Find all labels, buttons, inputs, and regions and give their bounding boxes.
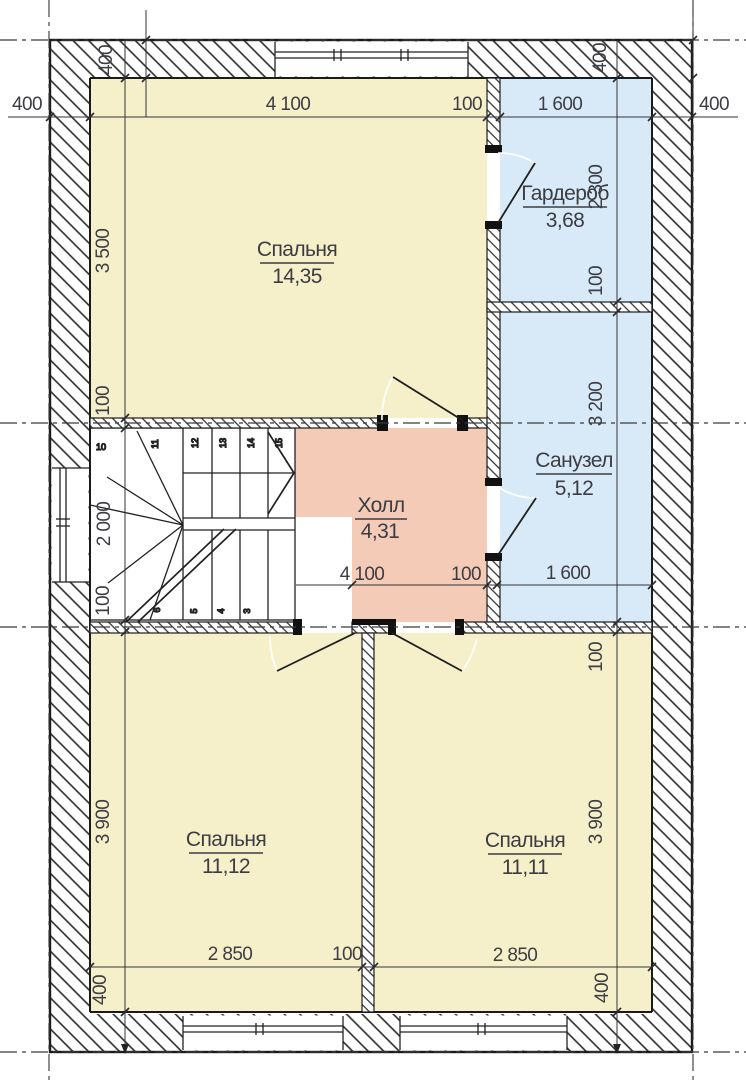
dim-label: 100 [452, 94, 482, 115]
room-area: 4,31 [361, 520, 399, 543]
dim-label: 100 [93, 386, 114, 416]
dim-label: 400 [12, 94, 42, 115]
dim-label: 3 900 [93, 800, 114, 845]
dim-label: 400 [592, 973, 613, 1003]
step-number: 5 [189, 608, 199, 613]
dim-label: 2 000 [94, 502, 115, 547]
dim-label: 400 [90, 975, 111, 1005]
room-name: Спальня [186, 828, 266, 851]
window-top [275, 42, 468, 78]
room-name: Спальня [257, 238, 337, 261]
dim-label: 400 [590, 43, 611, 73]
step-number: 12 [190, 438, 200, 448]
dim-label: 1 600 [538, 94, 583, 115]
dim-label: 3 900 [586, 800, 607, 845]
room-label-hall: Холл 4,31 [355, 494, 407, 543]
floor-plan-page: 10 11 12 13 14 15 6 5 4 3 [0, 0, 746, 1080]
floor-plan-drawing: 10 11 12 13 14 15 6 5 4 3 [0, 0, 746, 1080]
step-number: 11 [150, 439, 160, 448]
room-area: 5,12 [555, 477, 593, 500]
dim-label: 100 [586, 642, 607, 672]
window-left [52, 468, 90, 582]
step-number: 4 [216, 608, 226, 613]
room-area: 11,11 [502, 856, 548, 879]
room-area: 11,12 [202, 855, 250, 878]
dim-label: 100 [451, 564, 481, 585]
window-bottom-left [183, 1016, 343, 1051]
room-area: 3,68 [546, 209, 584, 232]
room-name: Гардероб [521, 182, 609, 205]
dim-label: 4 100 [340, 564, 385, 585]
dim-label: 4 100 [266, 94, 311, 115]
dim-label: 400 [96, 45, 117, 75]
step-number: 13 [218, 438, 228, 448]
room-name: Санузел [535, 449, 613, 472]
step-number: 14 [246, 438, 256, 448]
dim-label: 1 600 [546, 563, 591, 584]
room-area: 14,35 [272, 265, 322, 288]
window-bottom-right [400, 1016, 567, 1051]
room-name: Холл [357, 494, 404, 517]
staircase: 10 11 12 13 14 15 6 5 4 3 [90, 428, 295, 622]
dim-label: 3 200 [586, 382, 607, 427]
dim-label: 100 [586, 266, 607, 296]
step-number: 3 [242, 608, 252, 613]
dim-label: 100 [332, 944, 362, 965]
dim-label: 100 [93, 586, 114, 616]
step-number: 15 [274, 438, 284, 448]
room-name: Спальня [485, 829, 565, 852]
step-number: 10 [96, 442, 106, 452]
dim-label: 2 850 [493, 945, 538, 966]
dim-label: 2 850 [208, 944, 253, 965]
step-number: 6 [152, 607, 162, 612]
dim-label: 400 [699, 94, 729, 115]
dim-label: 3 500 [93, 229, 114, 274]
